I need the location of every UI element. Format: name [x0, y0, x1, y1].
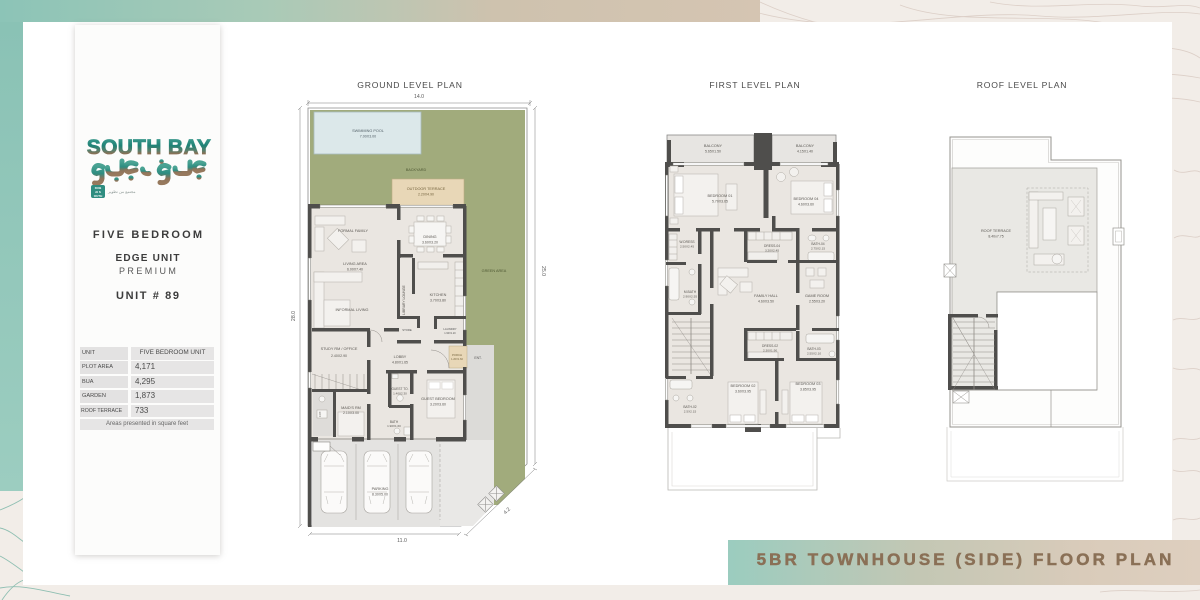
- svg-text:PARKING: PARKING: [372, 487, 389, 491]
- svg-text:OUTDOOR TERRACE: OUTDOOR TERRACE: [407, 187, 446, 191]
- svg-text:14.0: 14.0: [414, 94, 424, 100]
- svg-text:FOY.: FOY.: [318, 411, 322, 417]
- svg-text:GAME ROOM: GAME ROOM: [805, 294, 829, 298]
- svg-text:LIBRARY LOUNGE: LIBRARY LOUNGE: [402, 284, 406, 314]
- svg-text:GROUND LEVEL PLAN: GROUND LEVEL PLAN: [357, 80, 462, 90]
- svg-text:6.00X7.40: 6.00X7.40: [347, 268, 363, 272]
- svg-text:4.60X3.60: 4.60X3.60: [798, 203, 814, 207]
- svg-text:BATH-02: BATH-02: [683, 405, 696, 409]
- svg-text:STUDY RM / OFFICE: STUDY RM / OFFICE: [321, 347, 358, 351]
- svg-text:STORE: STORE: [402, 328, 412, 332]
- svg-text:KITCHEN: KITCHEN: [430, 293, 447, 297]
- svg-text:BATH-04: BATH-04: [811, 242, 824, 246]
- svg-text:8.30X5.00: 8.30X5.00: [372, 493, 388, 497]
- svg-text:3.85X3.95: 3.85X3.95: [800, 388, 816, 392]
- svg-text:28.0: 28.0: [291, 311, 297, 321]
- svg-text:PORCH: PORCH: [452, 353, 462, 357]
- svg-text:BALCONY: BALCONY: [704, 144, 723, 148]
- svg-text:5.65X1.50: 5.65X1.50: [705, 150, 721, 154]
- svg-text:BEDROOM 04: BEDROOM 04: [794, 197, 819, 201]
- svg-text:DRESS-04: DRESS-04: [764, 244, 780, 248]
- svg-text:BEDROOM 03: BEDROOM 03: [796, 382, 821, 386]
- svg-text:LAUNDRY: LAUNDRY: [443, 327, 456, 331]
- svg-text:5.70X3.65: 5.70X3.65: [712, 200, 728, 204]
- svg-text:11.0: 11.0: [397, 538, 407, 544]
- svg-text:FORMAL FAMILY: FORMAL FAMILY: [338, 229, 368, 233]
- svg-text:2.20X4.90: 2.20X4.90: [418, 193, 434, 197]
- svg-text:3.20X2.45: 3.20X2.45: [765, 249, 779, 253]
- svg-text:INFORMAL LIVING: INFORMAL LIVING: [336, 308, 369, 312]
- svg-text:SOUTH BAY: SOUTH BAY: [87, 136, 211, 159]
- svg-text:2.55X2.10: 2.55X2.10: [807, 352, 821, 356]
- svg-text:ROOF TERRACE: ROOF TERRACE: [981, 229, 1012, 233]
- svg-text:2.5X2.15: 2.5X2.15: [684, 410, 697, 414]
- svg-text:DINING: DINING: [423, 235, 436, 239]
- svg-text:3.60X3.20: 3.60X3.20: [422, 241, 438, 245]
- svg-text:FAMILY HALL: FAMILY HALL: [754, 294, 778, 298]
- svg-text:GREEN AREA: GREEN AREA: [482, 269, 507, 273]
- svg-text:1.90X1.60: 1.90X1.60: [387, 424, 401, 428]
- svg-text:2.50X2.45: 2.50X2.45: [680, 245, 694, 249]
- svg-text:1.40X2.30: 1.40X2.30: [393, 392, 407, 396]
- svg-text:LIVING AREA: LIVING AREA: [343, 262, 367, 266]
- svg-text:GUEST TO.: GUEST TO.: [391, 387, 408, 391]
- svg-text:SWIMMING POOL: SWIMMING POOL: [352, 129, 384, 133]
- svg-text:25.0: 25.0: [540, 266, 546, 276]
- svg-text:MAID'S RM: MAID'S RM: [341, 406, 361, 410]
- svg-text:ENT.: ENT.: [474, 356, 481, 360]
- svg-text:3.60X3.95: 3.60X3.95: [735, 390, 751, 394]
- svg-text:2.40X2.90: 2.40X2.90: [331, 354, 347, 358]
- svg-text:7.00X3.00: 7.00X3.00: [360, 135, 376, 139]
- svg-text:BALCONY: BALCONY: [796, 144, 815, 148]
- svg-text:2.55X3.20: 2.55X3.20: [809, 300, 825, 304]
- svg-text:LOBBY: LOBBY: [394, 355, 407, 359]
- svg-text:2.30X1.90: 2.30X1.90: [763, 349, 777, 353]
- svg-text:W.DRESS: W.DRESS: [679, 240, 695, 244]
- svg-text:4.2: 4.2: [503, 507, 512, 516]
- svg-text:GUEST BEDROOM: GUEST BEDROOM: [421, 397, 455, 401]
- svg-text:3.20X3.60: 3.20X3.60: [430, 403, 446, 407]
- svg-text:ROOF LEVEL PLAN: ROOF LEVEL PLAN: [977, 80, 1068, 90]
- svg-text:2.10X3.00: 2.10X3.00: [343, 411, 359, 415]
- svg-text:2.75X2.15: 2.75X2.15: [811, 247, 825, 251]
- svg-text:1.90X1.20: 1.90X1.20: [444, 332, 456, 335]
- svg-text:BEDROOM 01: BEDROOM 01: [708, 194, 733, 198]
- svg-text:8.40x7.75: 8.40x7.75: [988, 235, 1003, 239]
- svg-text:BATH-03: BATH-03: [807, 347, 820, 351]
- svg-text:4.15X1.40: 4.15X1.40: [797, 150, 813, 154]
- svg-text:3.70X3.80: 3.70X3.80: [430, 299, 446, 303]
- svg-text:BACKYARD: BACKYARD: [406, 168, 427, 172]
- svg-text:4.60X3.50: 4.60X3.50: [758, 300, 774, 304]
- svg-text:BEDROOM 02: BEDROOM 02: [731, 384, 756, 388]
- svg-text:M.BATH: M.BATH: [684, 290, 697, 294]
- svg-text:2.90X2.55: 2.90X2.55: [683, 295, 697, 299]
- svg-text:DRESS-02: DRESS-02: [762, 344, 778, 348]
- svg-text:1.20X1.60: 1.20X1.60: [451, 357, 463, 361]
- svg-text:4.80X1.65: 4.80X1.65: [392, 361, 408, 365]
- svg-text:FIRST LEVEL PLAN: FIRST LEVEL PLAN: [709, 80, 800, 90]
